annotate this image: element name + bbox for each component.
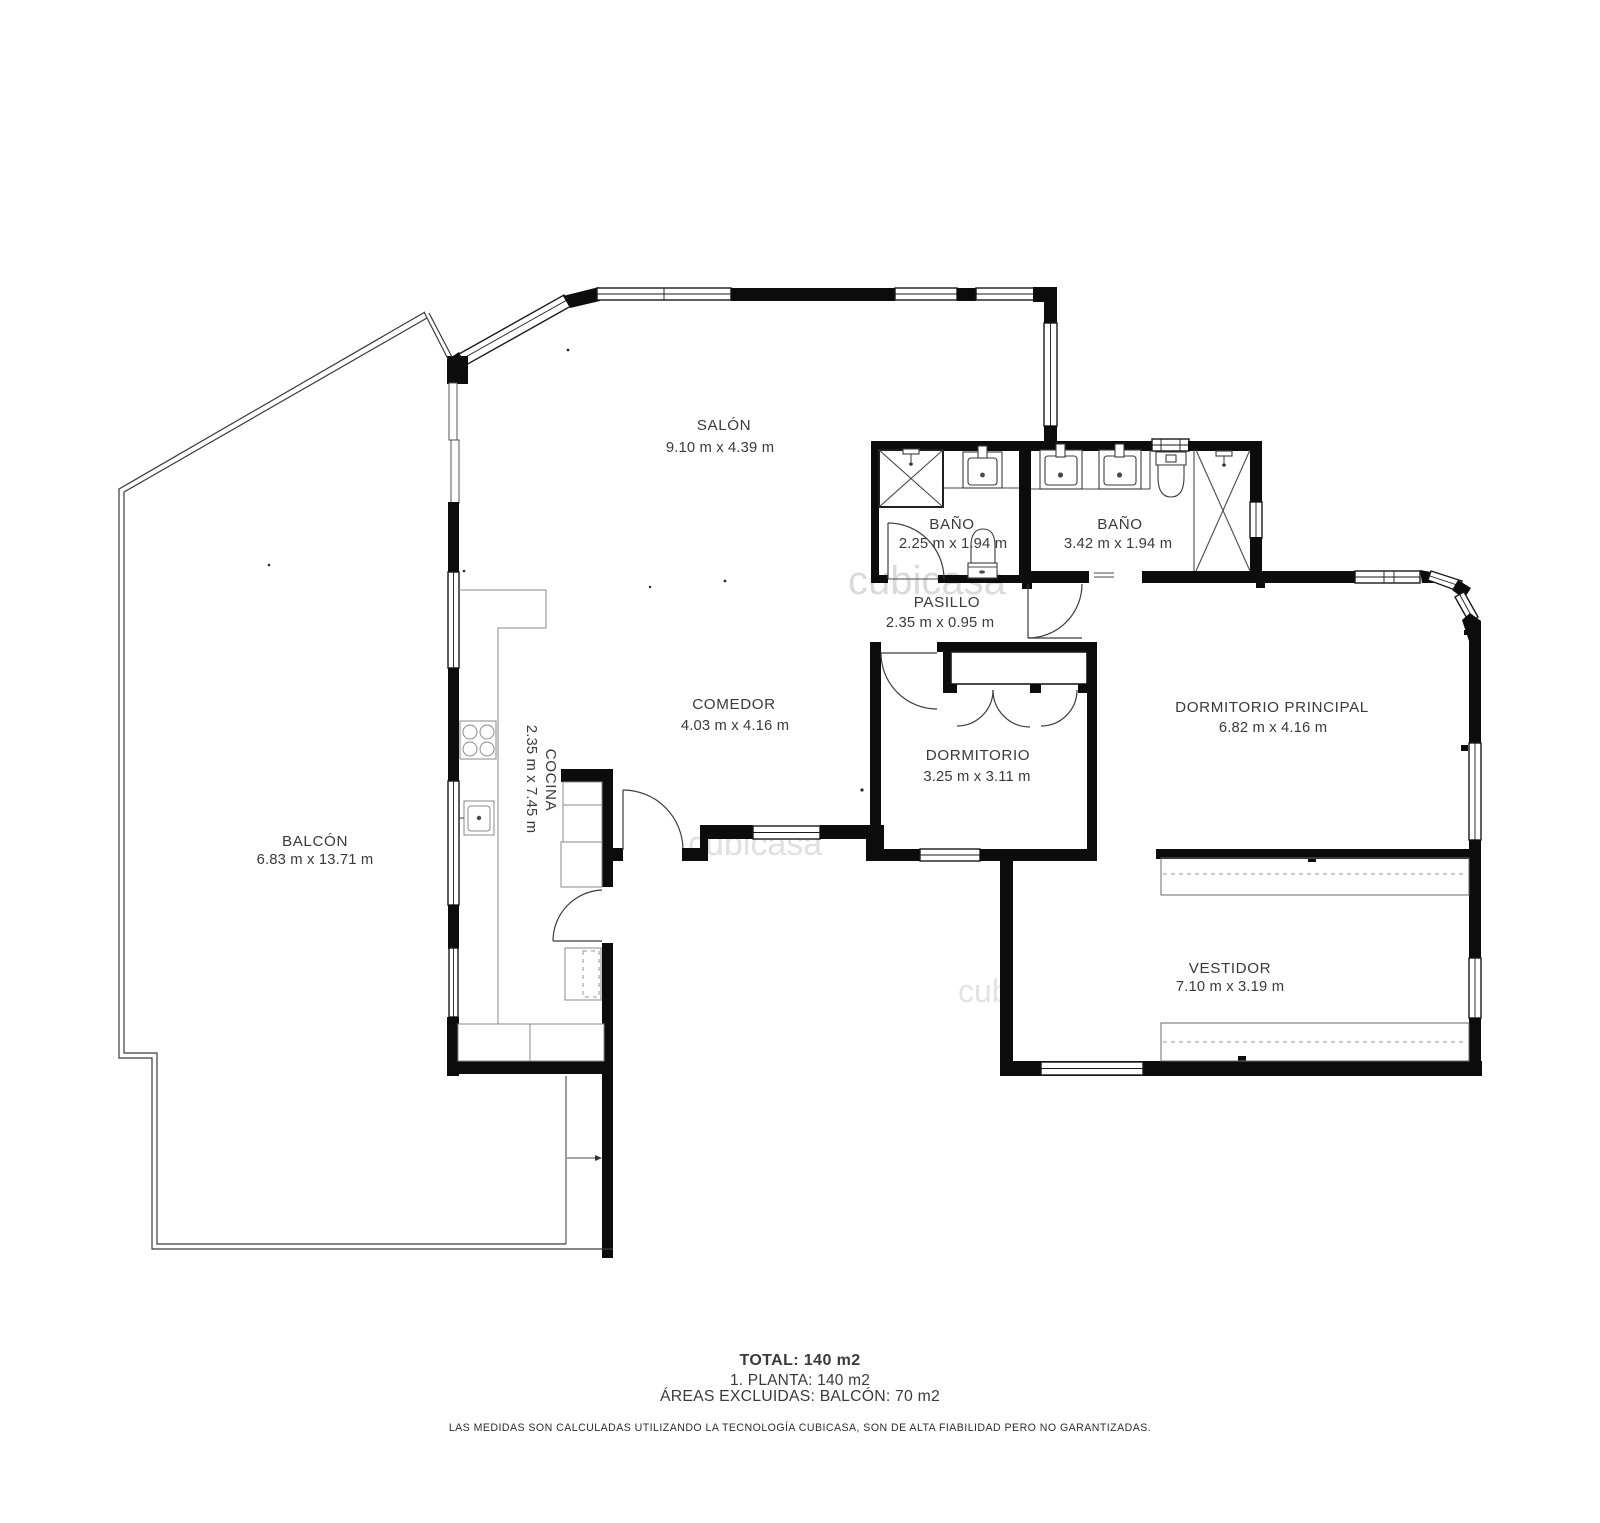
svg-text:6.83 m x 13.71 m: 6.83 m x 13.71 m <box>257 852 374 868</box>
svg-text:4.03 m x 4.16 m: 4.03 m x 4.16 m <box>681 718 789 734</box>
svg-text:TOTAL: 140 m2: TOTAL: 140 m2 <box>739 1352 860 1369</box>
svg-text:6.82 m x 4.16 m: 6.82 m x 4.16 m <box>1219 720 1327 736</box>
svg-text:BAÑO: BAÑO <box>929 516 974 533</box>
svg-text:3.42 m x 1.94 m: 3.42 m x 1.94 m <box>1064 536 1172 552</box>
svg-text:1. PLANTA: 140 m2: 1. PLANTA: 140 m2 <box>730 1372 870 1389</box>
svg-text:2.35 m x 7.45 m: 2.35 m x 7.45 m <box>523 725 539 833</box>
svg-text:PASILLO: PASILLO <box>914 594 980 611</box>
svg-text:LAS MEDIDAS SON CALCULADAS UTI: LAS MEDIDAS SON CALCULADAS UTILIZANDO LA… <box>449 1421 1151 1434</box>
svg-text:7.10 m x 3.19 m: 7.10 m x 3.19 m <box>1176 979 1284 995</box>
svg-text:BAÑO: BAÑO <box>1097 516 1142 533</box>
svg-text:DORMITORIO: DORMITORIO <box>926 747 1030 764</box>
svg-text:DORMITORIO PRINCIPAL: DORMITORIO PRINCIPAL <box>1175 699 1369 716</box>
svg-text:SALÓN: SALÓN <box>697 417 752 434</box>
svg-text:BALCÓN: BALCÓN <box>282 833 348 850</box>
svg-text:VESTIDOR: VESTIDOR <box>1189 960 1271 977</box>
svg-text:COMEDOR: COMEDOR <box>692 696 776 713</box>
svg-text:9.10 m x 4.39 m: 9.10 m x 4.39 m <box>666 440 774 456</box>
svg-text:COCINA: COCINA <box>542 749 559 812</box>
svg-text:2.35 m x 0.95 m: 2.35 m x 0.95 m <box>886 615 994 631</box>
svg-text:3.25 m x 3.11 m: 3.25 m x 3.11 m <box>923 769 1030 785</box>
svg-text:2.25 m x 1.94 m: 2.25 m x 1.94 m <box>899 536 1007 552</box>
svg-text:ÁREAS EXCLUIDAS: BALCÓN: 70 m2: ÁREAS EXCLUIDAS: BALCÓN: 70 m2 <box>660 1386 940 1405</box>
